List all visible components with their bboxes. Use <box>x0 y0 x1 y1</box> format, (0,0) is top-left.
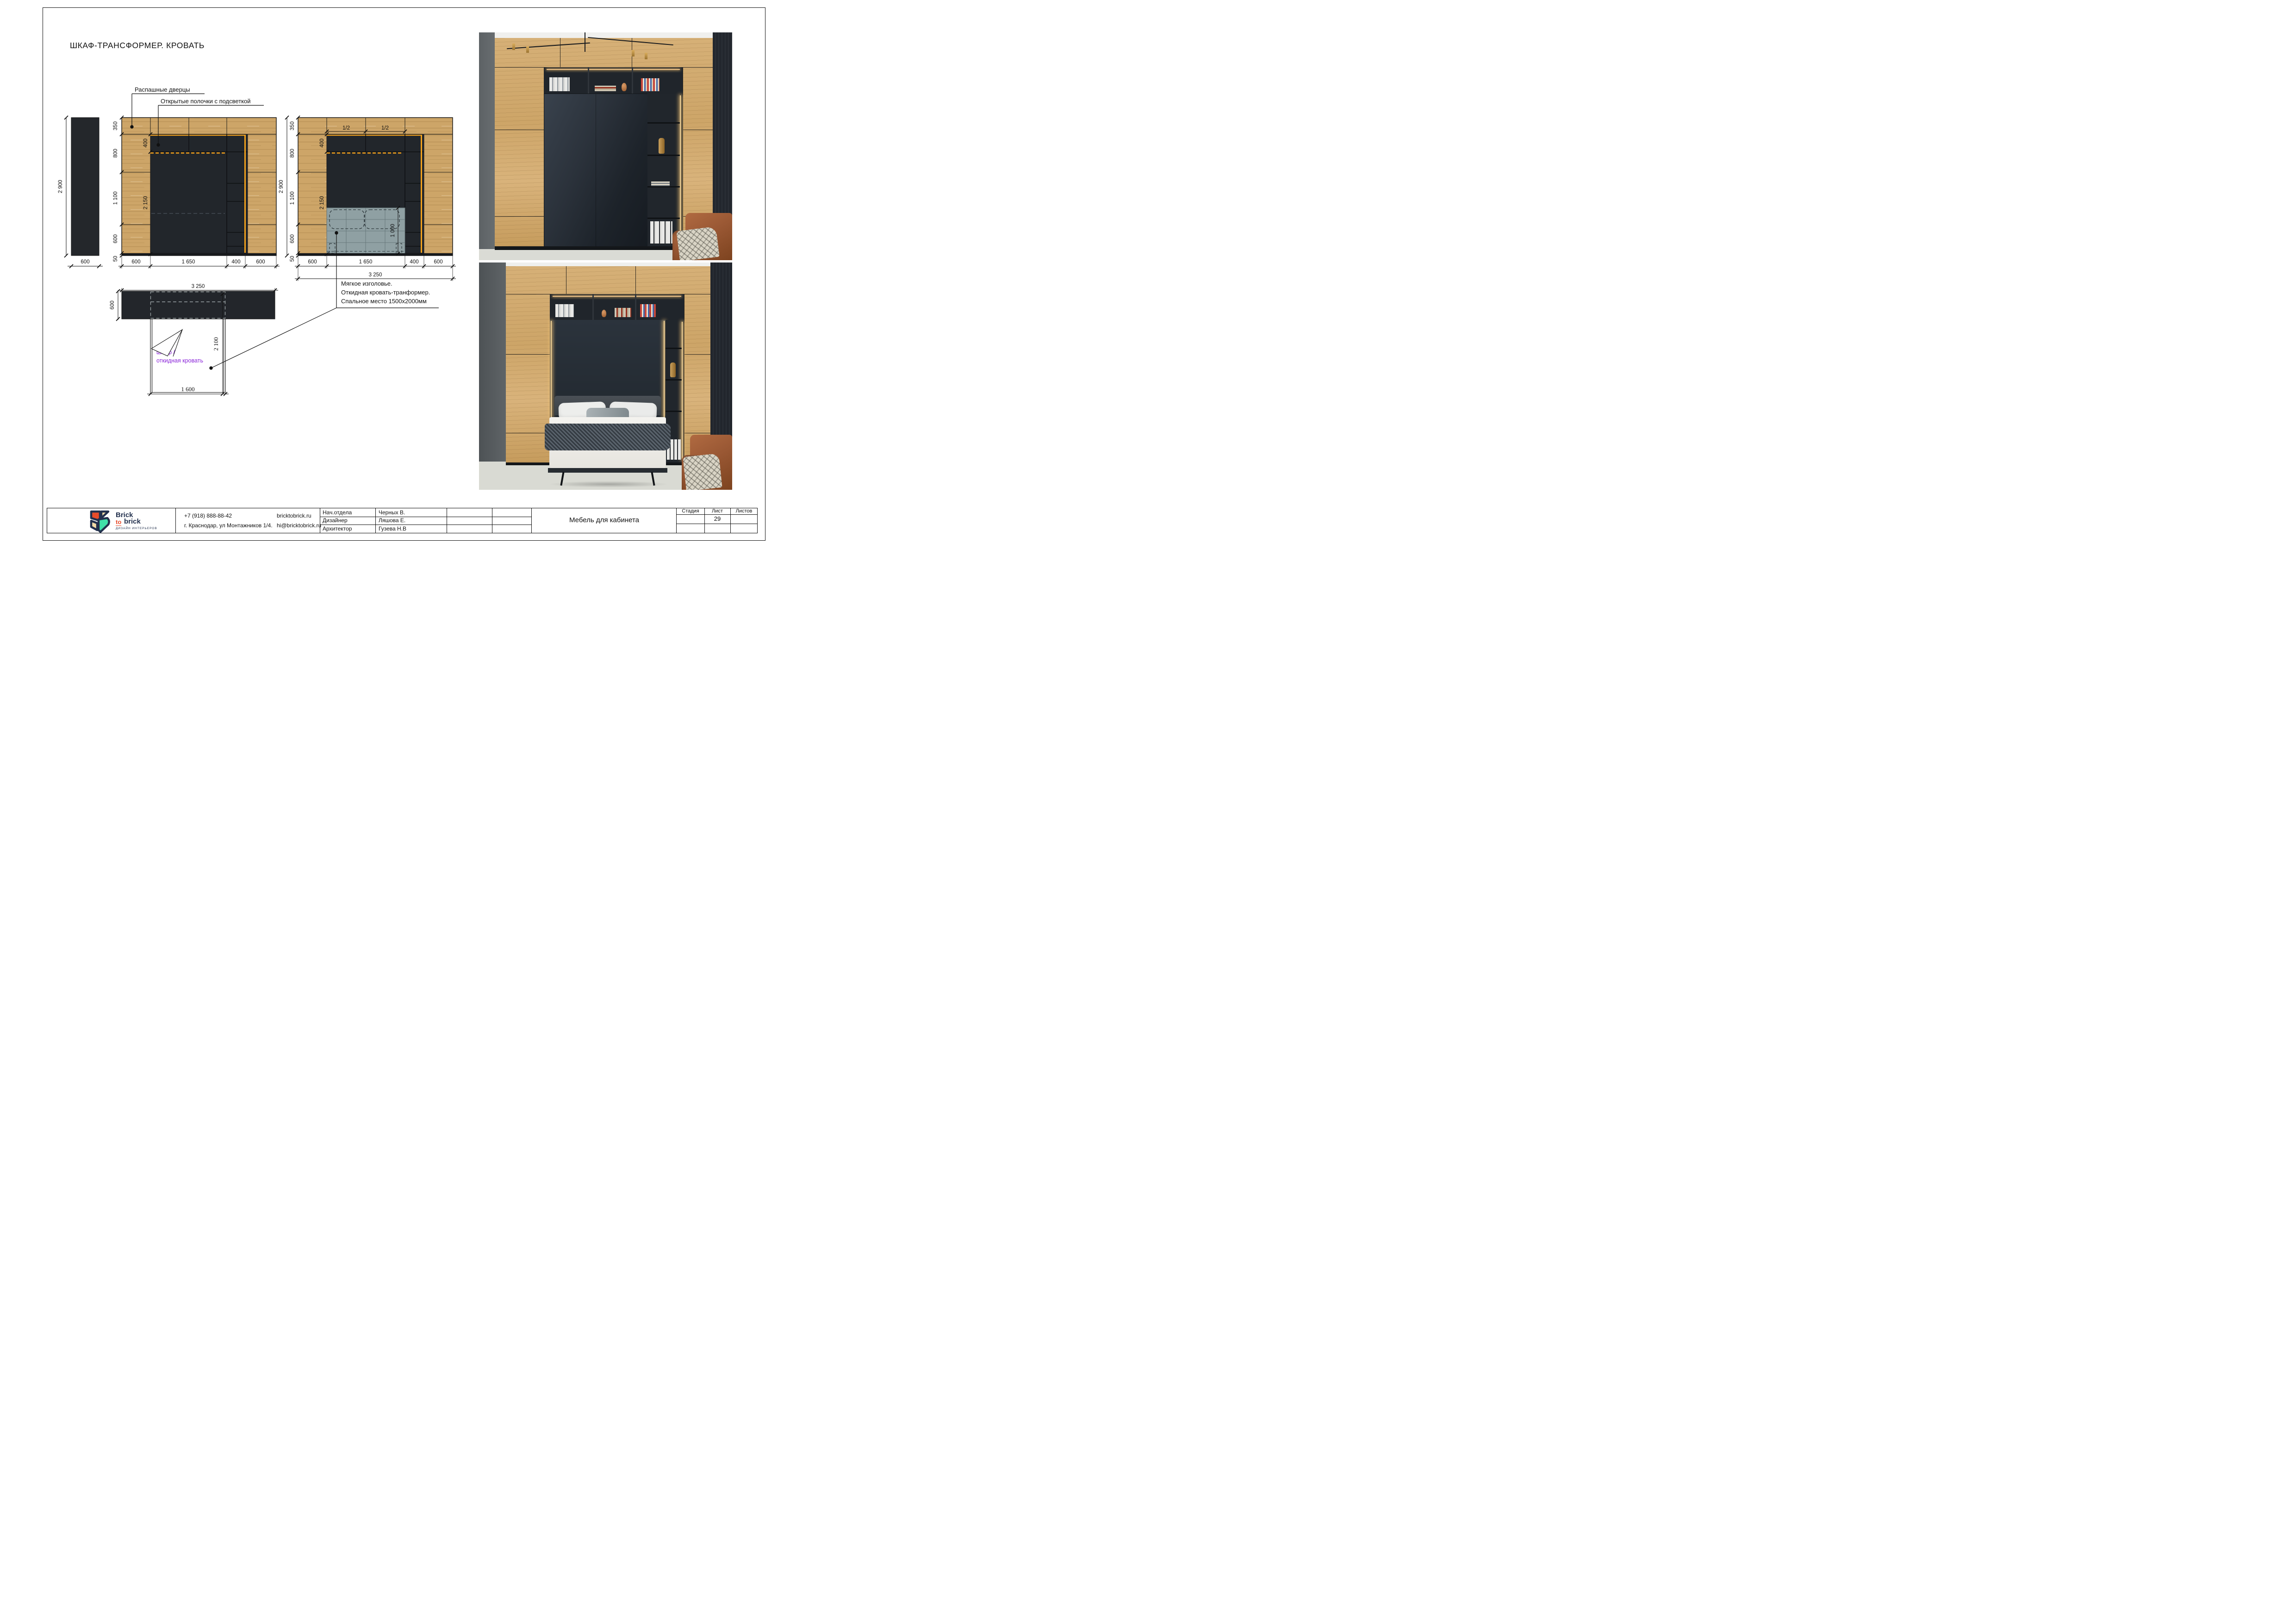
dim-label: 400 <box>319 138 325 147</box>
bed-frame-edge <box>548 468 667 473</box>
pendant-lamp <box>512 44 515 50</box>
elevation-open <box>298 118 453 256</box>
led-strip-side <box>244 135 246 253</box>
dim-label: 2 150 <box>143 196 149 210</box>
side-section <box>71 118 99 256</box>
pendant-lamp <box>526 46 529 53</box>
leader-dot-shelves <box>157 144 160 146</box>
plaid-blanket <box>683 453 722 490</box>
decor-flask <box>659 138 665 154</box>
dim-label: 1 650 <box>182 259 195 265</box>
dim-label: 600 <box>81 259 89 265</box>
book-stack <box>595 86 616 91</box>
contact-website: bricktobrick.ru <box>277 512 311 519</box>
dim-label: 350 <box>113 121 118 130</box>
dim-label: 600 <box>256 259 265 265</box>
shelf-unit-top <box>544 67 683 94</box>
contact-address: г. Краснодар, ул Монтажников 1/4. <box>184 522 273 529</box>
plan-view <box>122 291 275 394</box>
dim-label: 600 <box>308 259 317 265</box>
logo-cell: Brick to brick ДИЗАЙН ИНТЕРЬЕРОВ <box>47 508 175 533</box>
dim-label: 600 <box>110 300 115 309</box>
dim-label: 2 900 <box>279 180 284 194</box>
dim-label: 400 <box>231 259 240 265</box>
plaid-blanket <box>676 226 719 260</box>
bed-door-panel <box>544 94 648 247</box>
staff-table: Нач.отдела Черных В. Дизайнер Ляшова Е. … <box>320 508 532 533</box>
dim-label: 800 <box>113 149 118 157</box>
sheet-label: Лист <box>704 508 730 514</box>
dim-label: 3 250 <box>369 272 382 278</box>
plan-bed-outline <box>150 319 225 394</box>
staff-role: Архитектор <box>323 525 352 532</box>
stage-sheet-table: Стадия Лист Листов 29 <box>676 508 758 533</box>
pendant-lamp <box>645 53 647 59</box>
bed-shadow <box>548 481 669 487</box>
sheet-number: 29 <box>704 515 730 522</box>
leader-dot-plan-bed <box>210 367 212 369</box>
pendant-lamp <box>632 50 635 56</box>
dim-label: 1/2 <box>381 125 389 131</box>
elevation-closed <box>122 118 276 256</box>
dim-label: 600 <box>290 234 295 243</box>
dim-label: 2 100 <box>212 337 219 350</box>
dim-label: 600 <box>131 259 140 265</box>
led-strip-top <box>150 135 246 136</box>
bed-blanket <box>545 424 671 450</box>
dim-label: 3 250 <box>192 284 205 289</box>
drawing-sheet: ШКАФ-ТРАНСФОРМЕР. КРОВАТЬ Распашные двер… <box>0 0 765 541</box>
dim-label: 1 100 <box>290 192 295 205</box>
staff-name: Черных В. <box>379 509 405 516</box>
dim-label: 1 000 <box>390 224 396 237</box>
leader-dot-doors <box>131 125 133 128</box>
contact-email: hi@bricktobrick.ru <box>277 522 321 529</box>
project-title: Мебель для кабинета <box>532 516 677 524</box>
contact-phone: +7 (918) 888-88-42 <box>184 512 232 519</box>
render-closed <box>479 32 732 260</box>
armchair <box>682 435 732 490</box>
dim-label: 600 <box>113 234 118 243</box>
dim-label: 1 600 <box>181 386 194 393</box>
book-row <box>641 78 660 91</box>
sheets-label: Листов <box>730 508 758 514</box>
folder-row <box>549 77 570 91</box>
track-light <box>479 32 732 69</box>
logo-word3: brick <box>124 518 141 525</box>
staff-name: Ляшова Е. <box>379 517 405 524</box>
staff-name: Гузева Н.В <box>379 525 406 532</box>
dim-label: 800 <box>290 149 295 157</box>
staff-role: Дизайнер <box>323 517 348 524</box>
render-open <box>479 262 732 490</box>
staff-role: Нач.отдела <box>323 509 352 516</box>
dim-label: 1 650 <box>359 259 373 265</box>
title-block: Brick to brick ДИЗАЙН ИНТЕРЬЕРОВ +7 (918… <box>47 508 758 533</box>
dim-label: 400 <box>143 138 149 147</box>
dim-label: 50 <box>113 256 118 262</box>
dim-label: 2 150 <box>319 196 325 210</box>
contacts-cell: +7 (918) 888-88-42 г. Краснодар, ул Монт… <box>175 508 320 533</box>
dim-label: 1/2 <box>342 125 350 131</box>
binder-row <box>650 221 672 244</box>
dim-label: 350 <box>290 121 295 130</box>
plinth <box>122 253 276 256</box>
dim-label: 50 <box>290 256 295 262</box>
decor-vase <box>622 83 627 91</box>
logo-tagline: ДИЗАЙН ИНТЕРЬЕРОВ <box>116 527 157 530</box>
logo-word2: to <box>116 518 121 526</box>
book-stack <box>651 181 670 186</box>
dim-label: 600 <box>434 259 442 265</box>
dim-label: 400 <box>410 259 418 265</box>
project-title-cell: Мебель для кабинета <box>531 508 677 533</box>
armchair <box>672 213 732 260</box>
dim-label: 1 100 <box>113 192 118 205</box>
stage-label: Стадия <box>677 508 704 514</box>
dim-label: 2 900 <box>58 180 63 194</box>
brick-to-brick-logo-mark <box>88 509 113 534</box>
